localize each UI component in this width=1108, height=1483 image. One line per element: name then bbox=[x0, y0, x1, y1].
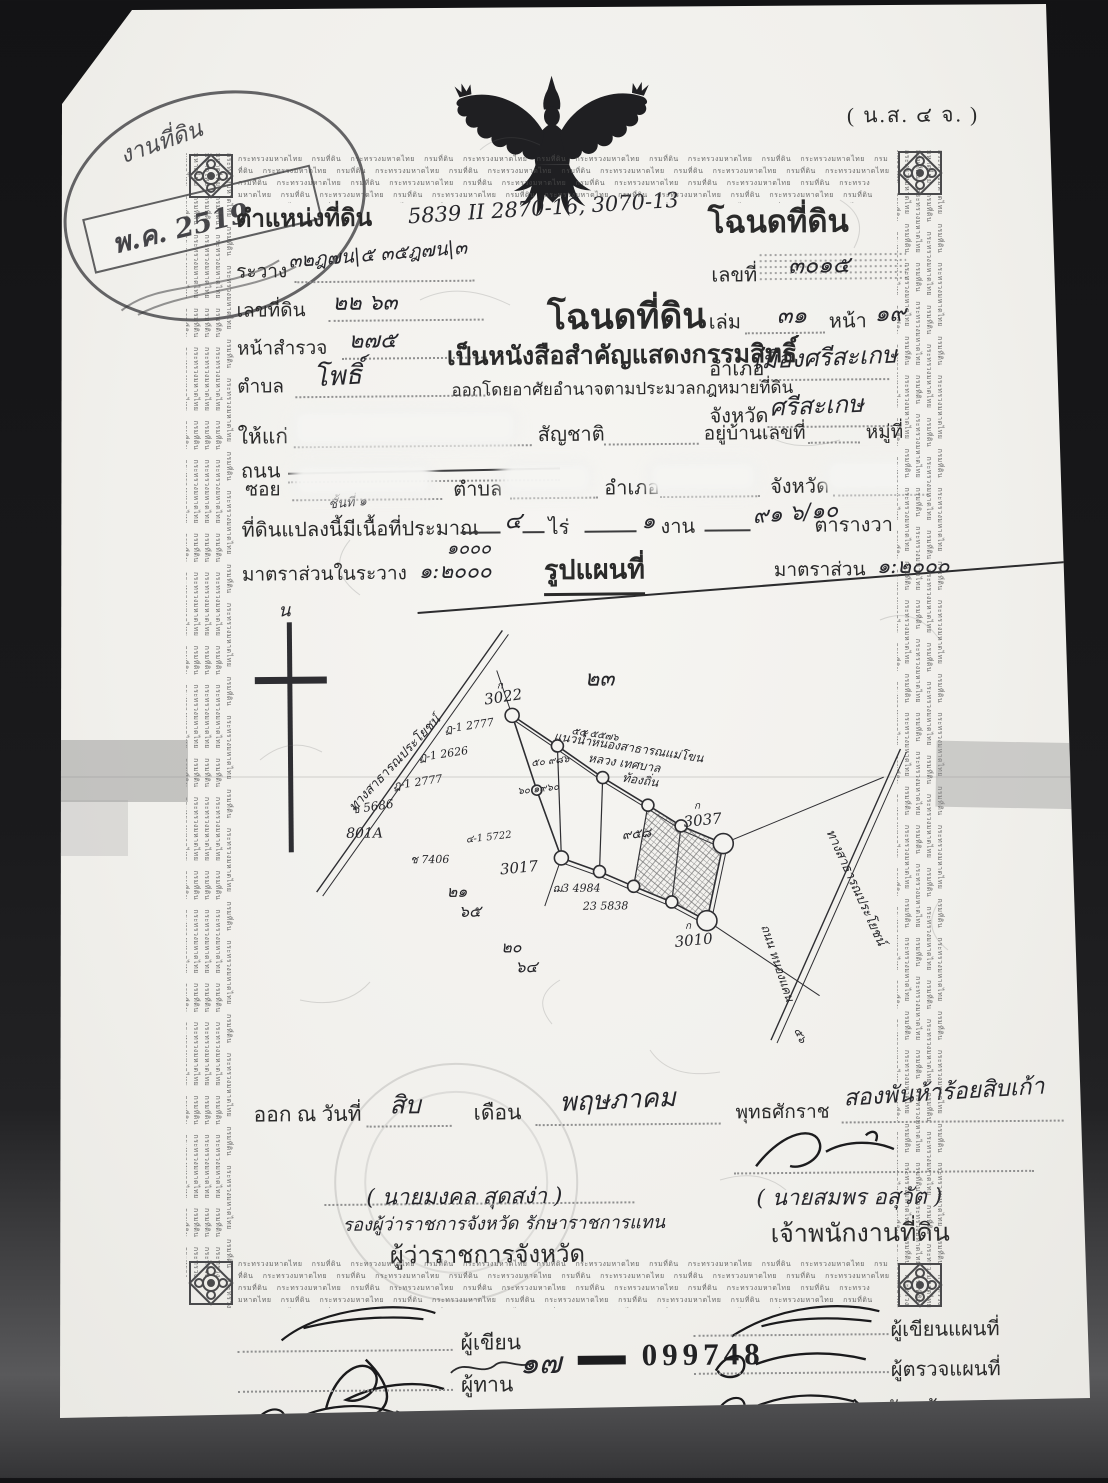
dotted-line bbox=[238, 1421, 453, 1427]
photo-of-document: { "form_code": "( น.ส. ๔ จ. )", "corner_… bbox=[0, 0, 1108, 1478]
deed-paper: กระทรวงมหาดไทย กรมที่ดิน กระทรวงมหาดไทย … bbox=[0, 0, 1108, 1478]
paper-crease bbox=[60, 776, 1070, 778]
dotted-line bbox=[694, 1407, 889, 1413]
tape-mark bbox=[935, 741, 1090, 810]
tape-mark bbox=[56, 800, 128, 856]
inspector-label: ผู้ตรวจ bbox=[461, 1406, 523, 1440]
paper-fibers bbox=[0, 0, 1108, 1478]
tape-mark bbox=[56, 740, 188, 802]
